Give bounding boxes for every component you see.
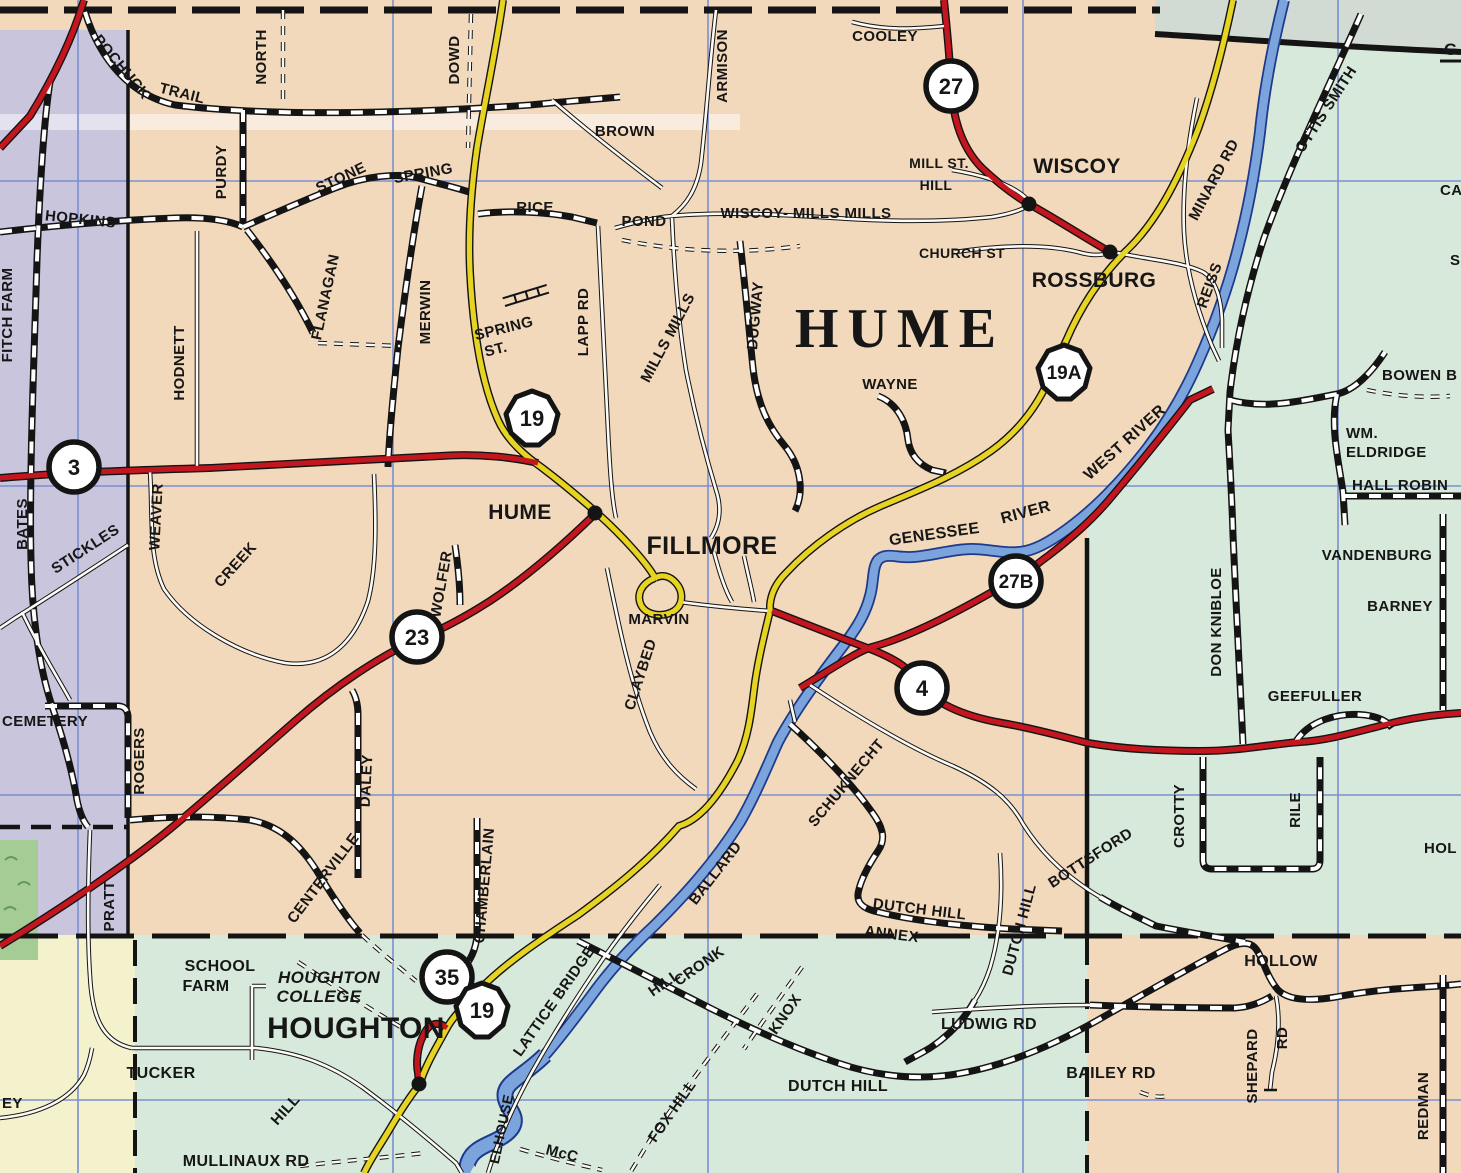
- label-redman: REDMAN: [1415, 1072, 1432, 1140]
- label-dutch-hill: DUTCH HILL: [788, 1078, 888, 1095]
- label-weaver: WEAVER: [146, 483, 166, 551]
- label-bates: BATES: [14, 498, 31, 550]
- label-hodnett: HODNETT: [171, 325, 188, 400]
- label-cemetery: CEMETERY: [2, 713, 88, 730]
- shield-number: 4: [916, 676, 929, 701]
- route-shield-19: 19: [506, 391, 558, 445]
- label-crotty: CROTTY: [1171, 784, 1188, 848]
- shield-number: 23: [405, 625, 429, 650]
- label-ey: EY: [2, 1095, 23, 1112]
- route-shield-23: 23: [392, 612, 442, 662]
- wiscoy-dot: [1022, 197, 1037, 212]
- label-hol: HOL: [1424, 840, 1457, 857]
- region-sw-cream: [0, 935, 135, 1173]
- shield-number: 3: [68, 455, 80, 480]
- township-name-hume: HUME: [795, 298, 1005, 360]
- village-name-hume: HUME: [488, 501, 551, 524]
- label-armison: ARMISON: [714, 29, 731, 103]
- label-mill-st-: MILL ST.: [909, 155, 969, 171]
- label-houghton: HOUGHTON: [278, 968, 380, 987]
- label-pond: POND: [622, 213, 667, 230]
- label-rogers: ROGERS: [131, 727, 148, 794]
- route-shield-19a: 19A: [1038, 345, 1090, 399]
- label-wiscoy-mills-mills: WISCOY- MILLS MILLS: [721, 205, 892, 222]
- label-rice: RICE: [516, 199, 553, 216]
- label-rd: RD: [1274, 1027, 1291, 1049]
- label-pratt: PRATT: [101, 881, 118, 932]
- label-rile: RILE: [1287, 792, 1304, 828]
- shield-number: 19: [520, 406, 544, 431]
- label-marvin: MARVIN: [628, 611, 689, 628]
- label-dowd: DOWD: [446, 35, 463, 84]
- shield-number: 35: [435, 965, 459, 990]
- label-geefuller: GEEFULLER: [1268, 688, 1362, 705]
- label-north: NORTH: [253, 29, 270, 84]
- label-don-knibloe: DON KNIBLOE: [1208, 567, 1225, 676]
- label-farm: FARM: [183, 978, 230, 995]
- rossburg-dot: [1103, 245, 1118, 260]
- label-brown: BROWN: [595, 123, 655, 140]
- label-mullinaux-rd: MULLINAUX RD: [183, 1153, 310, 1170]
- route-shield-3: 3: [49, 442, 99, 492]
- map-canvas: 3272327B4351919A19 POCHUCKTRAILNORTHDOWD…: [0, 0, 1461, 1173]
- label-wayne: WAYNE: [862, 376, 918, 393]
- houghton-dot: [412, 1077, 427, 1092]
- route-shield-4: 4: [897, 663, 947, 713]
- label-purdy: PURDY: [213, 145, 230, 200]
- label-fitch-farm: FITCH FARM: [0, 268, 16, 363]
- label-vandenburg: VANDENBURG: [1322, 547, 1432, 564]
- label-lapp-rd: LAPP RD: [575, 288, 592, 356]
- label-g: G: [1444, 40, 1458, 59]
- label-s: S: [1450, 252, 1460, 269]
- label-hill: HILL: [920, 177, 953, 193]
- route-shield-19: 19: [456, 983, 508, 1037]
- village-name-rossburg: ROSSBURG: [1032, 269, 1157, 292]
- label-cooley: COOLEY: [852, 28, 918, 45]
- label-barney: BARNEY: [1367, 598, 1433, 615]
- village-name-houghton: HOUGHTON: [267, 1012, 445, 1045]
- county-road-map: 3272327B4351919A19 POCHUCKTRAILNORTHDOWD…: [0, 0, 1461, 1173]
- label-church-st: CHURCH ST: [919, 245, 1005, 261]
- route-shield-27: 27: [926, 61, 976, 111]
- shield-number: 27B: [999, 572, 1034, 593]
- label-bailey-rd: BAILEY RD: [1066, 1065, 1156, 1082]
- label-school: SCHOOL: [185, 958, 256, 975]
- label-eldridge: ELDRIDGE: [1346, 444, 1427, 461]
- label-hollow: HOLLOW: [1244, 953, 1318, 970]
- label-shepard: SHEPARD: [1244, 1028, 1261, 1103]
- label-merwin: MERWIN: [417, 280, 434, 345]
- village-name-fillmore: FILLMORE: [647, 532, 778, 560]
- label-college: COLLEGE: [277, 987, 362, 1006]
- hume-dot: [588, 506, 603, 521]
- label-bowen-b: BOWEN B: [1382, 367, 1457, 384]
- village-name-wiscoy: WISCOY: [1033, 155, 1121, 178]
- label-hall-robin: HALL ROBIN: [1352, 477, 1448, 494]
- label-ludwig-rd: LUDWIG RD: [941, 1016, 1037, 1033]
- shield-number: 19: [470, 998, 494, 1023]
- shield-number: 19A: [1047, 363, 1082, 384]
- label-car: CAR: [1440, 182, 1461, 199]
- shield-number: 27: [939, 74, 963, 99]
- label-daley: DALEY: [357, 754, 377, 808]
- label-tucker: TUCKER: [126, 1065, 195, 1082]
- route-shield-27b: 27B: [991, 556, 1041, 606]
- label-wm-: WM.: [1346, 425, 1378, 442]
